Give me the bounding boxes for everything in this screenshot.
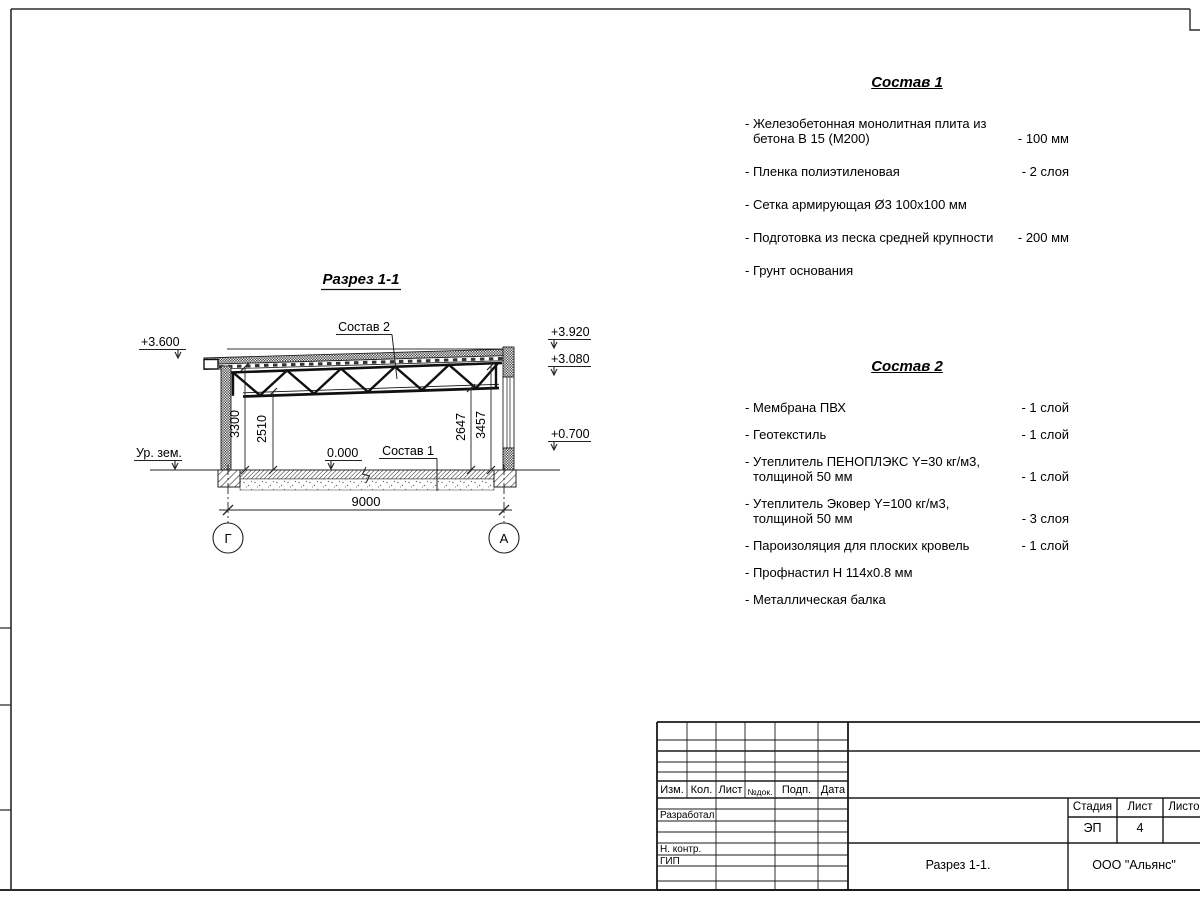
tb-sheets-label: Листов (1163, 801, 1200, 813)
tb-col-podp: Подп. (775, 784, 818, 796)
material-value: - 200 мм (1018, 230, 1069, 245)
span-dimension-value: 9000 (352, 494, 381, 509)
material-item: - Сетка армирующая Ø3 100х100 мм (745, 197, 1069, 212)
material-name: - Геотекстиль (745, 427, 997, 442)
material-value: - 1 слой (1021, 469, 1069, 484)
axis-letter-right: А (500, 531, 509, 546)
material-name: - Подготовка из песка средней крупности (745, 230, 997, 245)
tb-company: ООО "Альянс" (1068, 859, 1200, 871)
right-window-opening (503, 377, 514, 448)
right-wall (503, 347, 514, 470)
elevation-right-mid: +3.080 (551, 352, 590, 366)
binding-tick-marks (0, 628, 11, 810)
sostav2-ref-label: Состав 2 (338, 320, 390, 334)
material-value: - 1 слой (1021, 538, 1069, 553)
ground-level-label: Ур. зем. (136, 446, 182, 460)
material-value: - 100 мм (1018, 131, 1069, 146)
material-name: - Железобетонная монолитная плита из бет… (745, 116, 997, 146)
roof-deck (204, 349, 512, 370)
foundation-left (218, 470, 240, 487)
elevation-zero: 0.000 (327, 446, 358, 460)
tb-col-list: Лист (716, 784, 745, 796)
right-sill-wall (503, 448, 514, 470)
axis-letter-left: Г (224, 531, 231, 546)
tb-doc-title: Разрез 1-1. (848, 859, 1068, 871)
tb-sheet-label: Лист (1117, 801, 1163, 813)
material-value: - 1 слой (1021, 427, 1069, 442)
tb-stage-value: ЭП (1068, 822, 1117, 834)
material-item: - Геотекстиль - 1 слой (745, 427, 1069, 442)
material-item: - Металлическая балка (745, 592, 1069, 607)
composition-leaders: Состав 2 Состав 1 (336, 320, 437, 491)
material-name: - Мембрана ПВХ (745, 400, 997, 415)
section-title: Разрез 1-1 (322, 271, 399, 288)
dim-right-clear: 3457 (474, 411, 488, 439)
material-name: - Грунт основания (745, 263, 997, 278)
material-item: - Мембрана ПВХ - 1 слой (745, 400, 1069, 415)
drawing-sheet: Г А 9000 3300 2510 2647 (0, 0, 1200, 900)
material-name: - Пленка полиэтиленовая (745, 164, 997, 179)
sostav2-list: Состав 2 - Мембрана ПВХ - 1 слой - Геоте… (745, 358, 1069, 619)
tb-role-ncontr: Н. контр. (660, 844, 701, 856)
view-title: Разрез 1-1 (321, 271, 401, 290)
section-view: Г А 9000 3300 2510 2647 (134, 271, 591, 553)
elevation-right-top: +3.920 (551, 325, 590, 339)
sostav1-ref-label: Состав 1 (382, 444, 434, 458)
material-value: - 1 слой (1021, 400, 1069, 415)
interior-dimensions: 3300 2510 2647 3457 (228, 362, 495, 474)
tb-col-ndok: №док. (745, 786, 775, 798)
elevation-right-low: +0.700 (551, 427, 590, 441)
material-item: - Железобетонная монолитная плита из бет… (745, 116, 1069, 146)
tb-col-data: Дата (818, 784, 848, 796)
roof-edge-flashing (204, 360, 218, 370)
tb-role-gip: ГИП (660, 856, 680, 868)
material-item: - Утеплитель ПЕНОПЛЭКС Y=30 кг/м3, толщи… (745, 454, 1069, 484)
material-item: - Профнастил Н 114х0.8 мм (745, 565, 1069, 580)
material-value: - 2 слоя (1022, 164, 1069, 179)
tb-role-developed: Разработал (660, 810, 714, 822)
tb-sheet-value: 4 (1117, 822, 1163, 834)
right-parapet (503, 347, 514, 377)
material-item: - Грунт основания (745, 263, 1069, 278)
floor-slab (240, 470, 494, 479)
material-item: - Пленка полиэтиленовая - 2 слоя (745, 164, 1069, 179)
material-name: - Металлическая балка (745, 592, 997, 607)
roof-truss (230, 363, 502, 397)
material-item: - Подготовка из песка средней крупности … (745, 230, 1069, 245)
tb-stage-label: Стадия (1068, 801, 1117, 813)
sostav1-title: Состав 1 (745, 74, 1069, 91)
material-name: - Сетка армирующая Ø3 100х100 мм (745, 197, 1043, 212)
material-name: - Утеплитель Эковер Y=100 кг/м3, толщино… (745, 496, 997, 526)
material-item: - Пароизоляция для плоских кровель - 1 с… (745, 538, 1069, 553)
sostav1-list: Состав 1 - Железобетонная монолитная пли… (745, 74, 1069, 296)
material-name: - Профнастил Н 114х0.8 мм (745, 565, 997, 580)
dim-left-clear: 3300 (228, 410, 242, 438)
material-item: - Утеплитель Эковер Y=100 кг/м3, толщино… (745, 496, 1069, 526)
material-value: - 3 слоя (1022, 511, 1069, 526)
dim-left-truss: 2510 (255, 415, 269, 443)
tb-col-izm: Изм. (657, 784, 687, 796)
sostav2-title: Состав 2 (745, 358, 1069, 375)
dim-right-truss: 2647 (454, 413, 468, 441)
elevation-left-top: +3.600 (141, 335, 180, 349)
tb-col-kol: Кол. (687, 784, 716, 796)
material-name: - Пароизоляция для плоских кровель (745, 538, 988, 553)
material-name: - Утеплитель ПЕНОПЛЭКС Y=30 кг/м3, толщи… (745, 454, 997, 484)
foundation-right (494, 470, 516, 487)
